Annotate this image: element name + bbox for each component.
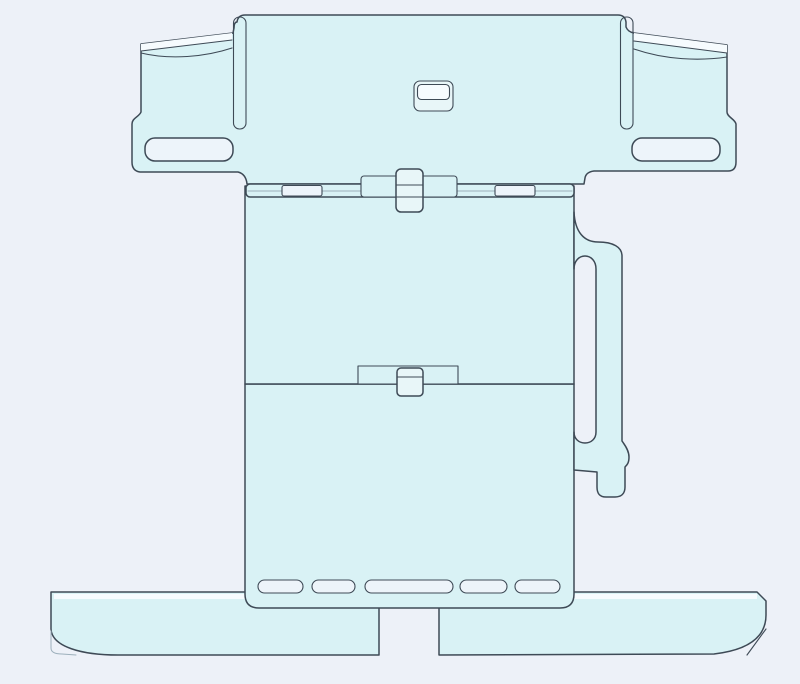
middle-panel bbox=[245, 186, 574, 384]
vent-slot-5 bbox=[515, 580, 560, 593]
lower-panel-body bbox=[245, 384, 574, 608]
top-plate bbox=[132, 15, 736, 184]
vent-slot-2 bbox=[312, 580, 355, 593]
hinge-window-left bbox=[282, 186, 322, 197]
vent-slot-1 bbox=[258, 580, 303, 593]
cad-viewport[interactable] bbox=[0, 0, 800, 684]
divider-tab-clip bbox=[397, 368, 423, 396]
center-button-inner bbox=[418, 85, 450, 100]
hinge-window-right bbox=[495, 186, 535, 197]
hinge-knob-body bbox=[396, 169, 423, 212]
top-plate-right-slot bbox=[632, 138, 720, 161]
vent-slot-4 bbox=[460, 580, 507, 593]
lower-panel bbox=[245, 384, 574, 608]
hinge-knob bbox=[396, 169, 423, 212]
top-plate-left-slot bbox=[145, 138, 233, 161]
cad-drawing bbox=[0, 0, 800, 684]
vent-slot-3 bbox=[365, 580, 453, 593]
center-button bbox=[414, 81, 453, 111]
